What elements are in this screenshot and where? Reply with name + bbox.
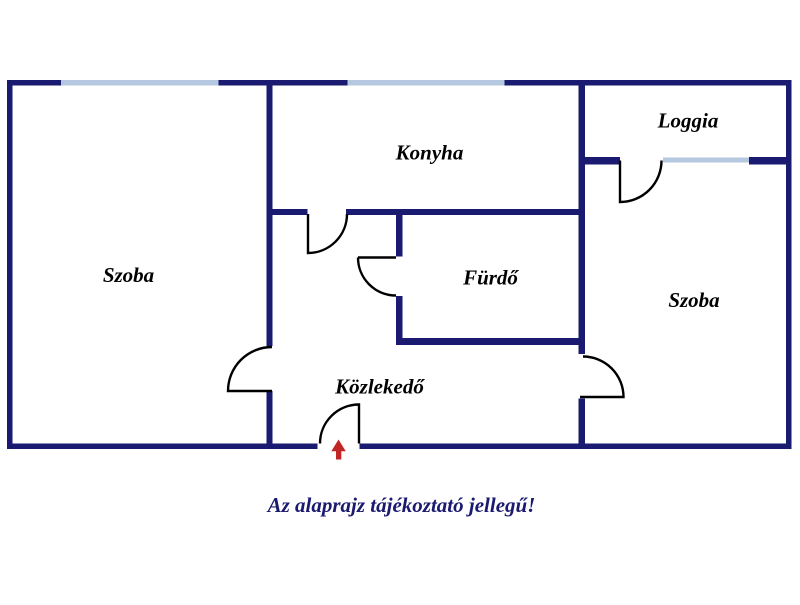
svg-text:Fürdő: Fürdő xyxy=(462,266,519,290)
svg-text:Szoba: Szoba xyxy=(668,288,719,312)
svg-text:Szoba: Szoba xyxy=(103,263,154,287)
svg-text:Közlekedő: Közlekedő xyxy=(334,375,425,399)
svg-text:Loggia: Loggia xyxy=(657,109,719,133)
svg-text:Konyha: Konyha xyxy=(395,141,464,165)
svg-text:Az alaprajz tájékoztató jelleg: Az alaprajz tájékoztató jellegű! xyxy=(266,493,536,517)
